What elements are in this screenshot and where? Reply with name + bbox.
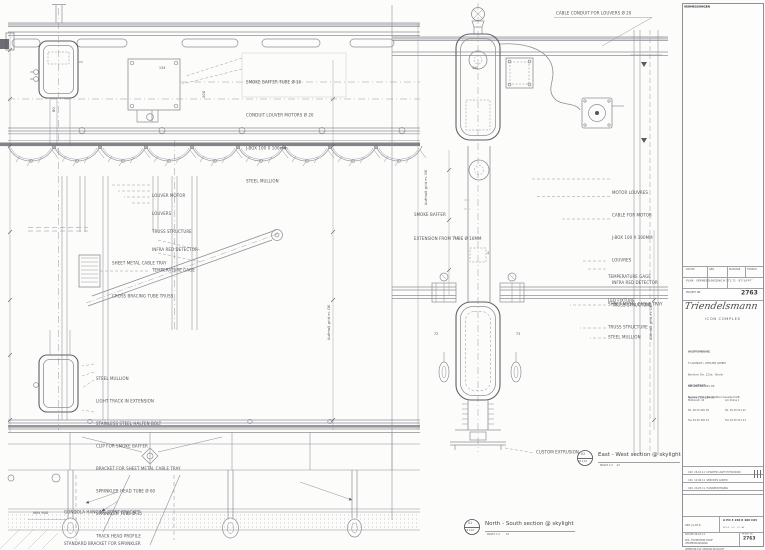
section-sub-01: MASST. 1:2 A3 — [487, 533, 509, 536]
dim-72: 72 — [434, 332, 438, 336]
logo-subtitle: ICON COMPLEX — [685, 317, 761, 321]
dim-100: 100 — [472, 66, 478, 70]
label-j-box: J-BOX 100 X 100mm — [246, 143, 314, 154]
survey-line: PLAN · VERMESSUNGSING — [686, 279, 723, 282]
label-steel-mullion-top: STEEL MULLION — [246, 176, 314, 187]
revision-row: C01 14.06.11 SERVICES ADDED — [685, 476, 728, 484]
section-sub-02: MASST. 1:2 A3 — [600, 464, 620, 467]
label-temperature-gage-left: TEMPERATURE GAGE — [152, 268, 195, 273]
address-2-col1: Mühlenstr. 44 Tel. 49 30 420 18 Fax 49 3… — [688, 392, 709, 428]
label-smoke-baffer-tube: SMOKE BAFFER TUBE Ø 16 — [246, 77, 314, 88]
title-block: VERMESSUNGEN DATUM GEZ. MASSTAB FORMAT P… — [682, 3, 764, 547]
address-2-col2-line: Fax 49 30 511 23 — [725, 418, 746, 421]
revision-row: C02 26.10.11 UPDATED LIGHT EXTRUSION — [685, 468, 740, 476]
field-label-scale: MASSTAB — [729, 268, 740, 271]
section-scale-01: A4 1:10 — [465, 529, 474, 532]
cad-sheet: SMOKE BAFFER TUBE Ø 16 CONDUIT LOUVER MO… — [0, 0, 765, 550]
coords-line: H 171.71 · 87°16'47" — [723, 279, 753, 282]
label-conduit-louver-motors: CONDUIT LOUVER MOTORS Ø 20 — [246, 110, 314, 121]
label-extension-tube: EXTENSION FROM TUBE Ø 16MM — [414, 235, 482, 243]
label-hanging-point-bracket: GONDOLA HANGING POINT BRACKET — [64, 507, 141, 518]
label-steel-mullion: STEEL MULLION — [96, 375, 181, 383]
logo-script: Triendelsmann — [683, 300, 759, 311]
address-1-line: T-LOUNGE / ATELIER GMBH — [688, 361, 726, 365]
label-louver-motor: LOUVER MOTOR — [152, 193, 198, 199]
field-label-format: FORMAT — [747, 268, 757, 271]
field-label-drawn: GEZ. — [709, 268, 715, 271]
revision-code: C01 — [688, 479, 693, 482]
title-block-top-label: VERMESSUNGEN — [684, 5, 710, 8]
label-smoke-baffer: SMOKE BAFFER — [414, 211, 482, 219]
revision-desc: UPDATED LIGHT EXTRUSION — [707, 471, 741, 474]
project-no-label-top: PROJEKT NR. — [686, 291, 701, 294]
revision-row: C00 26.05.11 HANDZEICHNUNG — [685, 484, 728, 492]
address-2-col1-line: Tel. 49 30 420 18 — [688, 409, 709, 412]
label-custom-extrusion: CUSTOM EXTRUSION — [536, 450, 579, 455]
project-no-top: 2763 — [741, 289, 758, 296]
label-cable-conduit: CABLE CONDUIT FOR LOUVERS Ø 20 — [556, 11, 631, 16]
label-block-bottom: GONDOLA HANGING POINT BRACKET STANDARD B… — [64, 486, 141, 550]
label-bracket-cable-tray: BRACKET FOR SHEET METAL CABLE TRAY — [96, 465, 181, 473]
drawing-number: A PO 3 240 8 106 C03 — [723, 519, 757, 522]
label-truss-structure-right: TRUSS STRUCTURE — [608, 325, 648, 330]
label-louvers: LOUVERS — [152, 211, 198, 217]
project-no-label-bottom: PROJEKT NR. — [742, 533, 753, 535]
dim-4: 4 — [487, 251, 489, 255]
section-scale-02: A6 1:10 — [578, 460, 587, 463]
label-steel-mullion-right: STEEL MULLION — [608, 335, 641, 340]
label-temperature-gage-right: TEMPERATURE GAGE — [608, 273, 651, 281]
dim-54: 54 — [454, 236, 458, 240]
dim-134: 134 — [159, 66, 165, 70]
revision-code: C00 — [688, 487, 693, 490]
label-cable-tray-right: SHEET METAL CABLE TRAY — [608, 302, 663, 307]
section-title-north-south: North - South section @ skylight — [485, 520, 574, 527]
label-block-top: SMOKE BAFFER TUBE Ø 16 CONDUIT LOUVER MO… — [246, 55, 314, 198]
field-label-date: DATUM — [686, 268, 695, 271]
dim-73: 73 — [516, 332, 520, 336]
address-2-header: ARCHITEKT — [688, 384, 740, 388]
revision-date: 26.10.11 — [694, 471, 705, 474]
project-no-bottom: 2763 — [743, 536, 756, 541]
sheet-title: ROL. EXHIBITION ROOF INTERIOR ELV. DESIG… — [685, 533, 724, 550]
section-title-east-west: East - West section @ skylight — [598, 451, 681, 458]
label-cable-for-motor: CABLE FOR MOTOR — [612, 212, 658, 220]
revision-date: 26.05.11 — [694, 487, 705, 490]
revision-date: 14.06.11 — [694, 479, 705, 482]
address-1-header: AUSFÜHRUNG — [688, 350, 726, 354]
address-2-col1-line: Mühlenstr. 44 — [688, 399, 709, 402]
sheet-title-line: ROL. EXHIBITION ROOF — [685, 539, 724, 542]
dim-80: 80 — [52, 107, 56, 112]
revision-desc: HANDZEICHNUNG — [707, 487, 729, 490]
label-light-track: LIGHT TRACK IN EXTENSION — [96, 398, 181, 406]
label-standard-bracket-sprinkler: STANDARD BRACKET FOR SPRINKLER — [64, 539, 141, 550]
revision-code: C02 — [688, 471, 693, 474]
section-number-02: 02 — [581, 452, 585, 456]
label-min-900: MIN 900 — [33, 511, 48, 515]
label-truss-structure: TRUSS STRUCTURE — [152, 229, 198, 235]
label-block-smoke: SMOKE BAFFER EXTENSION FROM TUBE Ø 16MM — [414, 195, 482, 251]
label-cross-bracing-tube-truss: CROSS BRACING TUBE TRUSS — [112, 291, 173, 302]
scales-row: SK 1:5 · 1:2 · 1:1 · A3 — [723, 526, 744, 528]
section-number-01: 01 — [468, 521, 472, 525]
address-2-col2: Am Zirkus 1 Tel. 49 30 511 22 Fax 49 30 … — [725, 392, 746, 428]
label-motor-louvres: MOTOR LOUVRES — [612, 189, 658, 197]
label-halfen-bolt: STAINLESS STEEL HALFEN BOLT — [96, 420, 181, 428]
address-2-col2-line: Am Zirkus 1 — [725, 399, 746, 402]
address-2-col1-line: Fax 49 30 420 19 — [688, 418, 709, 421]
revision-desc: SERVICES ADDED — [707, 479, 728, 482]
address-2-col2-line: Tel. 49 30 511 22 — [725, 409, 746, 412]
drawn-by: GEZ. JS-AH-R — [685, 524, 708, 527]
label-j-box-right: J-BOX 100 X 100MM — [612, 234, 658, 242]
label-block-tray: SHEET METAL CABLE TRAY CROSS BRACING TUB… — [112, 236, 173, 313]
label-clip-smoke-baffer: CLIP FOR SMOKE BAFFER — [96, 443, 181, 451]
vertical-dim-label-left: Aufmaß grid m. OK — [327, 305, 331, 340]
dim-200: 200 — [202, 91, 206, 98]
